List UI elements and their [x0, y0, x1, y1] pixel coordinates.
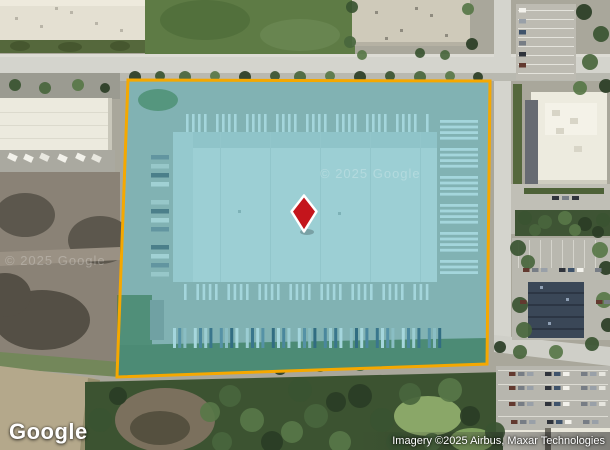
satellite-imagery: © 2025 Google © 2025 Google [0, 0, 610, 450]
map-canvas[interactable]: © 2025 Google © 2025 Google Google Image… [0, 0, 610, 450]
google-logo[interactable]: Google [9, 419, 88, 445]
google-watermark-left: © 2025 Google [5, 253, 106, 268]
imagery-attribution: Imagery ©2025 Airbus, Maxar Technologies [392, 435, 605, 447]
google-watermark-center: © 2025 Google [320, 166, 421, 181]
